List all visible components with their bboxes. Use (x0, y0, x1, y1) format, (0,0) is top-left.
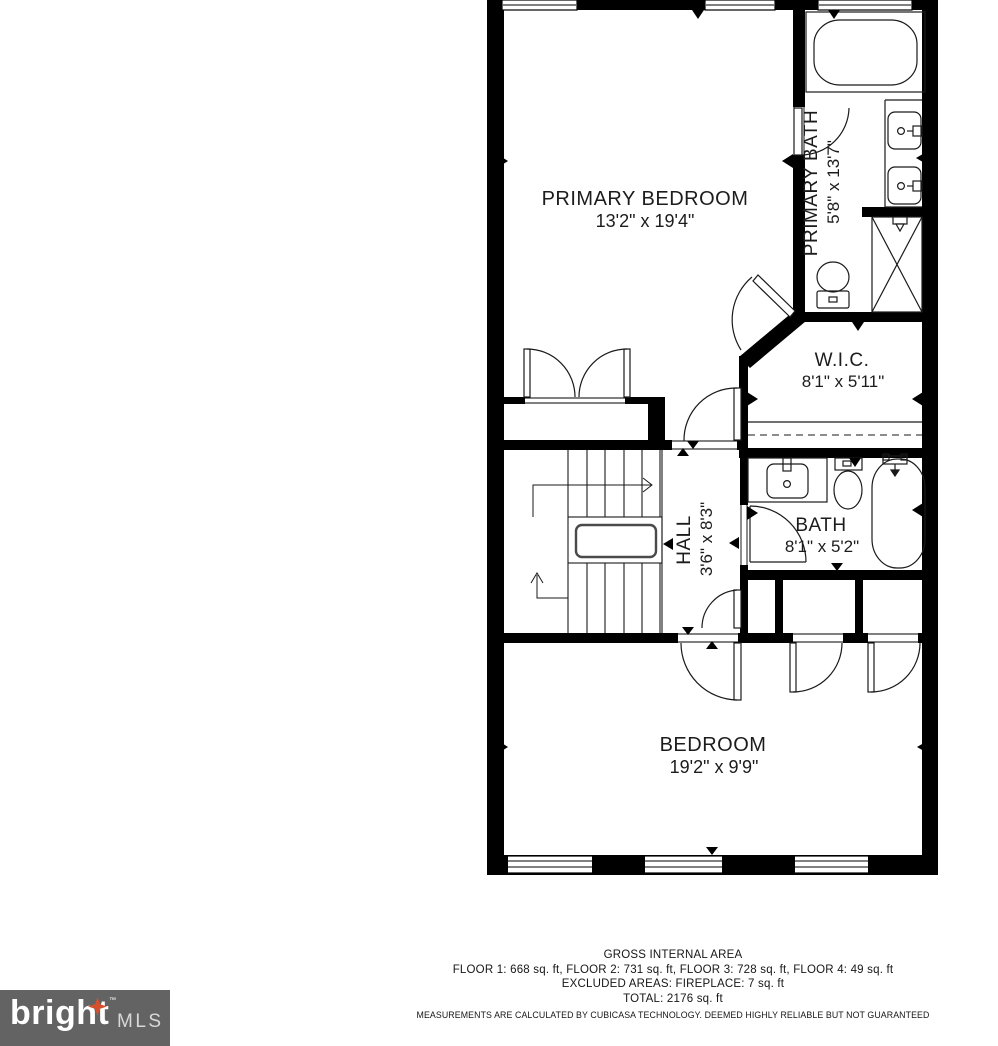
stairs-direction-arrow-lower (531, 573, 568, 598)
marker-right-wic (912, 392, 923, 406)
brightmls-star-icon (88, 997, 107, 1021)
bath-dims: 8'1" x 5'2" (785, 537, 859, 556)
stairs-upper-flight (568, 450, 660, 517)
bath-label: BATH (795, 515, 846, 536)
bedroom-dims: 19'2" x 9'9" (670, 757, 759, 777)
excluded-areas-line: EXCLUDED AREAS: FIREPLACE: 7 sq. ft (348, 977, 998, 992)
brightmls-mls-text: MLS (117, 1011, 164, 1033)
stairs-direction-arrow-up (533, 478, 652, 517)
marker-left-bath (747, 506, 758, 520)
door-bedroom-closet-b (790, 643, 842, 692)
window-top-2 (705, 0, 775, 10)
threshold-bath-door (740, 505, 748, 565)
toilet-icon-primary (817, 262, 849, 308)
window-bottom-2 (640, 856, 727, 873)
total-area-line: TOTAL: 2176 sq. ft (348, 992, 998, 1007)
area-summary: GROSS INTERNAL AREA FLOOR 1: 668 sq. ft,… (348, 948, 998, 1021)
stairs-landing (568, 517, 662, 563)
wic-label: W.I.C. (815, 350, 870, 371)
door-primary-bedroom-entry (684, 388, 741, 441)
floor-plan-drawing: PRIMARY BEDROOM 13'2" x 19'4" PRIMARY BA… (0, 0, 998, 946)
threshold-primary-bedroom-entry (672, 440, 737, 450)
floor-areas-line: FLOOR 1: 668 sq. ft, FLOOR 2: 731 sq. ft… (348, 963, 998, 978)
window-top-1 (502, 0, 577, 10)
door-hall-swing (702, 590, 741, 628)
threshold-bedroom-door (678, 633, 738, 643)
floorplan-page: PRIMARY BEDROOM 13'2" x 19'4" PRIMARY BA… (0, 0, 998, 1046)
shower-icon (872, 217, 922, 312)
measurement-disclaimer: MEASUREMENTS ARE CALCULATED BY CUBICASA … (348, 1010, 998, 1021)
bathtub-icon (806, 12, 925, 92)
bedroom-label: BEDROOM (660, 734, 767, 756)
wic-dims: 8'1" x 5'11" (802, 372, 885, 391)
wic-closet-rod (748, 422, 922, 435)
marker-top-primary-bath (828, 10, 840, 19)
primary-bedroom-label: PRIMARY BEDROOM (542, 188, 749, 210)
primary-bath-label: PRIMARY BATH (801, 110, 822, 256)
double-vanity-icon (885, 100, 922, 207)
toilet-icon-bath (834, 458, 862, 509)
marker-top-primary-bedroom (692, 10, 704, 19)
marker-right-primary-bedroom (782, 154, 793, 168)
window-top-3 (818, 0, 912, 10)
brightmls-logo: bright ™ MLS (0, 990, 170, 1046)
marker-hall-right (729, 537, 739, 549)
vanity-sink-icon (748, 458, 827, 502)
primary-bedroom-dims: 13'2" x 19'4" (596, 211, 695, 231)
marker-hall-left (663, 538, 673, 550)
threshold-closet-c (868, 633, 918, 643)
primary-bath-dims: 5'8" x 13'7" (824, 140, 843, 224)
brightmls-trademark: ™ (109, 997, 116, 1004)
staircase (531, 450, 662, 633)
door-bedroom (681, 643, 741, 700)
french-doors-closet (524, 349, 630, 397)
door-bedroom-closet-c (868, 643, 920, 692)
window-bottom-1 (503, 856, 597, 873)
marker-left-wic (747, 392, 758, 406)
marker-bottom-bath (831, 563, 843, 571)
marker-right-bath (912, 503, 923, 517)
threshold-closet-b (793, 633, 843, 643)
threshold-closet-french (525, 397, 625, 404)
hall-dims: 3'6" x 8'3" (697, 502, 716, 576)
hall-label: HALL (674, 515, 695, 565)
marker-top-wic (852, 322, 864, 331)
wall-markers (497, 10, 929, 855)
window-bottom-3 (790, 856, 873, 873)
stairs-lower-flight (568, 563, 660, 633)
marker-bedroom-bottom (706, 847, 718, 855)
gross-internal-area-title: GROSS INTERNAL AREA (348, 948, 998, 963)
